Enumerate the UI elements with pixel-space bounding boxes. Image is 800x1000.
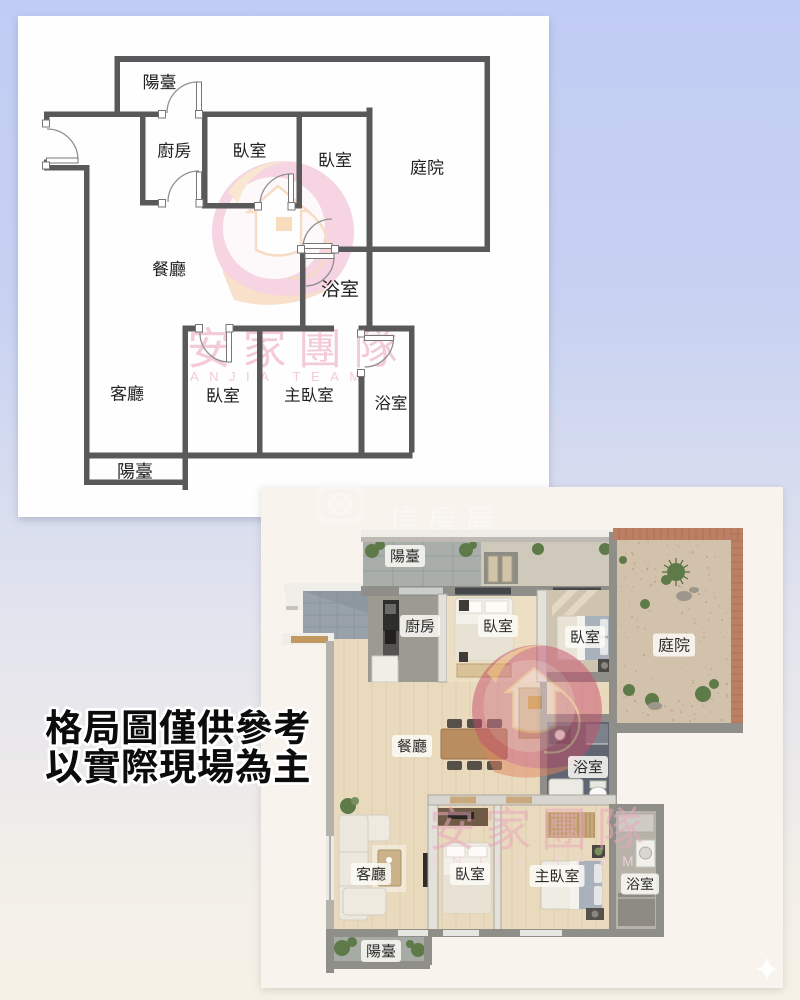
svg-text:ANJIA TEAM: ANJIA TEAM xyxy=(190,369,371,384)
